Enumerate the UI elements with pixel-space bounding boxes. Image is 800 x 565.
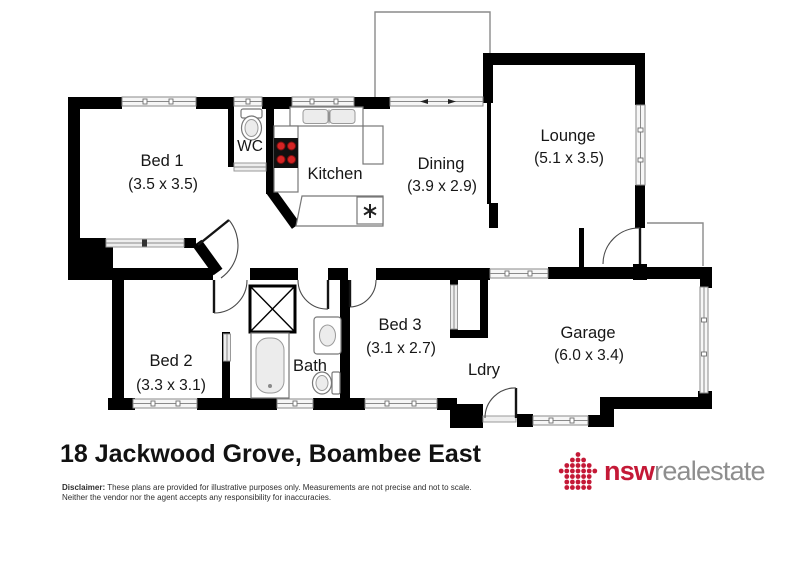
porch-outline bbox=[647, 223, 703, 266]
window bbox=[122, 97, 196, 106]
floor-plan-page: Bed 1 (3.5 x 3.5) WC Kitchen Dining (3.9… bbox=[0, 0, 800, 565]
wall-segment bbox=[197, 398, 277, 410]
window bbox=[277, 399, 313, 408]
wall-segment bbox=[80, 238, 106, 248]
room-dims-dining: (3.9 x 2.9) bbox=[407, 178, 477, 195]
room-label-bed3: Bed 3 bbox=[378, 316, 421, 334]
window bbox=[292, 97, 354, 106]
room-label-ldry: Ldry bbox=[468, 361, 501, 379]
room-dims-bed2: (3.3 x 3.1) bbox=[136, 377, 206, 394]
wall-segment bbox=[489, 203, 498, 228]
agency-logo: nswrealestate bbox=[558, 451, 765, 492]
linen-cupboard bbox=[250, 286, 295, 332]
window bbox=[133, 399, 197, 408]
window bbox=[636, 105, 645, 185]
wall-segment bbox=[612, 397, 712, 409]
door-bed3 bbox=[350, 280, 376, 307]
room-labels: Bed 1 (3.5 x 3.5) WC Kitchen Dining (3.9… bbox=[128, 127, 624, 394]
wall-segment bbox=[480, 280, 488, 336]
window bbox=[365, 399, 437, 408]
room-label-bed2: Bed 2 bbox=[149, 352, 192, 370]
wall-segment bbox=[548, 267, 712, 279]
wall-segment bbox=[108, 398, 135, 410]
room-label-bath: Bath bbox=[293, 357, 327, 375]
wall-angled bbox=[270, 190, 296, 226]
garage-door bbox=[700, 287, 708, 393]
room-label-kitchen: Kitchen bbox=[307, 165, 362, 183]
logo-text-nsw: nsw bbox=[604, 456, 654, 486]
wall-segment bbox=[68, 97, 80, 250]
room-label-lounge: Lounge bbox=[540, 127, 595, 145]
hall-garage-door bbox=[490, 269, 548, 278]
wall-segment bbox=[483, 53, 493, 103]
wall-segment bbox=[250, 268, 298, 280]
disclaimer-line2: Neither the vendor nor the agent accepts… bbox=[62, 493, 502, 503]
wall-segment bbox=[328, 268, 348, 280]
disclaimer: Disclaimer: These plans are provided for… bbox=[62, 483, 502, 503]
wall-segment bbox=[635, 60, 645, 105]
wall-segment bbox=[228, 107, 234, 167]
wall-segment bbox=[700, 276, 712, 288]
room-dims-lounge: (5.1 x 3.5) bbox=[534, 150, 604, 167]
logo-house-dots-icon bbox=[558, 451, 598, 492]
wall-angled bbox=[197, 243, 218, 272]
logo-wordmark: nswrealestate bbox=[604, 456, 765, 487]
disclaimer-text2: Neither the vendor nor the agent accepts… bbox=[62, 493, 331, 502]
vanity-basin-icon bbox=[314, 317, 341, 354]
wall-segment bbox=[313, 398, 365, 410]
door-bath bbox=[298, 280, 328, 309]
room-dims-bed1: (3.5 x 3.5) bbox=[128, 176, 198, 193]
room-label-garage: Garage bbox=[560, 324, 615, 342]
toilet-icon bbox=[241, 109, 262, 140]
wall-segment bbox=[376, 268, 490, 280]
door-entry bbox=[603, 228, 640, 264]
room-dims-garage: (6.0 x 3.4) bbox=[554, 347, 624, 364]
laundry-door-sill bbox=[483, 416, 516, 422]
bed2-niche-panel bbox=[224, 334, 231, 361]
door-bed2 bbox=[214, 280, 247, 313]
bed3-wardrobe-door bbox=[451, 285, 458, 329]
window bbox=[234, 97, 262, 106]
wall-segment bbox=[266, 107, 274, 194]
wall-segment bbox=[600, 397, 614, 427]
wall-segment bbox=[112, 268, 124, 410]
wall-segment bbox=[487, 103, 491, 204]
room-label-wc: WC bbox=[237, 138, 263, 155]
logo-text-realestate: realestate bbox=[654, 456, 765, 486]
disclaimer-line1: Disclaimer: These plans are provided for… bbox=[62, 483, 502, 493]
window bbox=[533, 416, 588, 425]
wall-segment bbox=[112, 268, 213, 280]
sliding-door bbox=[390, 97, 483, 106]
wall-segment bbox=[635, 185, 645, 228]
toilet-icon bbox=[313, 372, 341, 394]
disclaimer-label: Disclaimer: bbox=[62, 483, 105, 492]
appliance-icon bbox=[357, 197, 383, 224]
wall-segment bbox=[633, 264, 647, 280]
wardrobe-sliding-door bbox=[106, 239, 184, 247]
wall-segment bbox=[450, 330, 488, 338]
cooktop-icon bbox=[274, 138, 298, 168]
wall-segment bbox=[579, 228, 584, 270]
page-title: 18 Jackwood Grove, Boambee East bbox=[60, 440, 481, 469]
wall-segment bbox=[698, 391, 712, 409]
deck-outline bbox=[375, 12, 490, 97]
wall-segment bbox=[517, 414, 533, 427]
bathtub-icon bbox=[251, 333, 289, 398]
wc-pocket-door bbox=[234, 163, 266, 171]
wall-segment bbox=[450, 404, 483, 428]
floor-plan-drawing: Bed 1 (3.5 x 3.5) WC Kitchen Dining (3.9… bbox=[0, 0, 800, 432]
kitchen-sink-icon bbox=[290, 107, 363, 126]
disclaimer-text1: These plans are provided for illustrativ… bbox=[107, 483, 472, 492]
room-label-bed1: Bed 1 bbox=[140, 152, 183, 170]
room-label-dining: Dining bbox=[418, 155, 465, 173]
room-dims-bed3: (3.1 x 2.7) bbox=[366, 340, 436, 357]
wall-segment bbox=[483, 53, 645, 65]
door-laundry bbox=[485, 388, 516, 418]
